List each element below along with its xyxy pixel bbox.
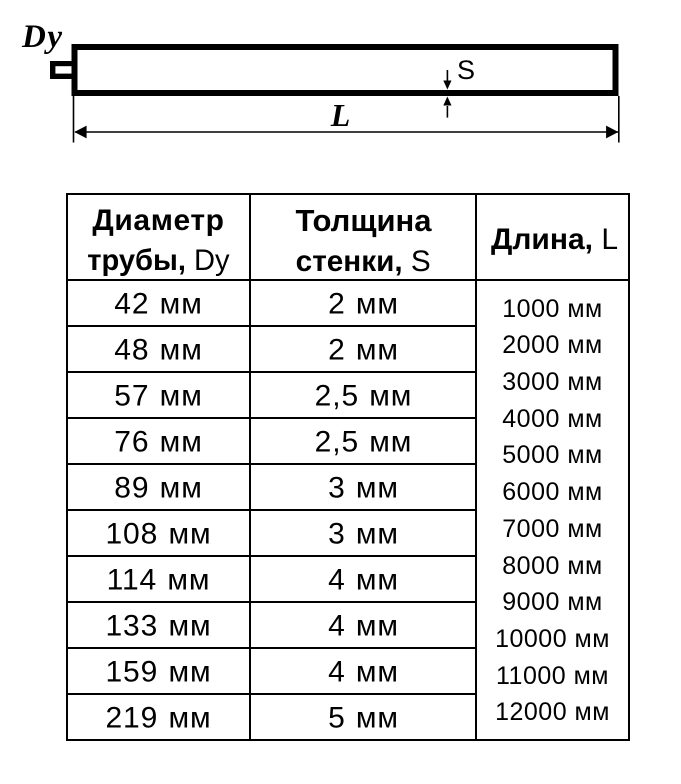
svg-text:L: L [330,97,351,133]
svg-text:Dy: Dy [21,19,63,55]
svg-text:S: S [457,55,475,85]
